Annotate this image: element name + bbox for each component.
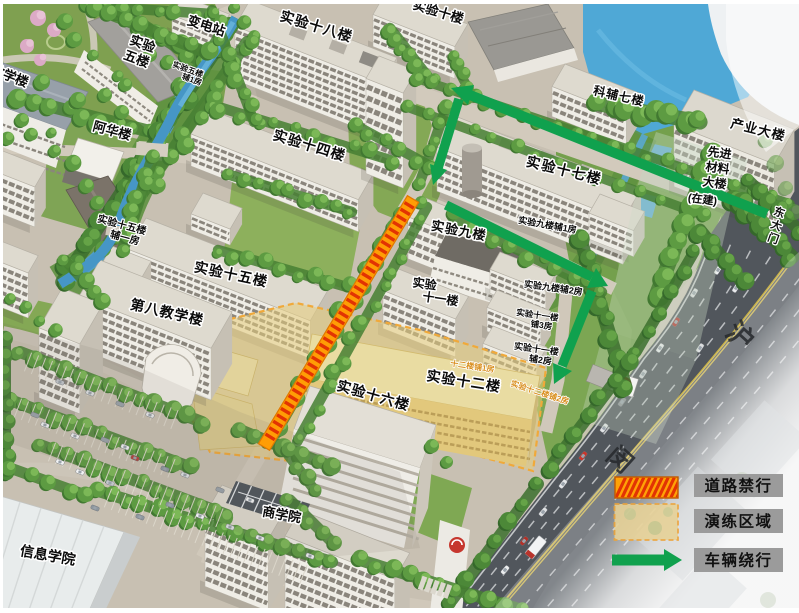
svg-text:道路禁行: 道路禁行 xyxy=(704,476,772,495)
svg-text:演练区域: 演练区域 xyxy=(704,512,772,531)
svg-text:车辆绕行: 车辆绕行 xyxy=(704,551,772,570)
